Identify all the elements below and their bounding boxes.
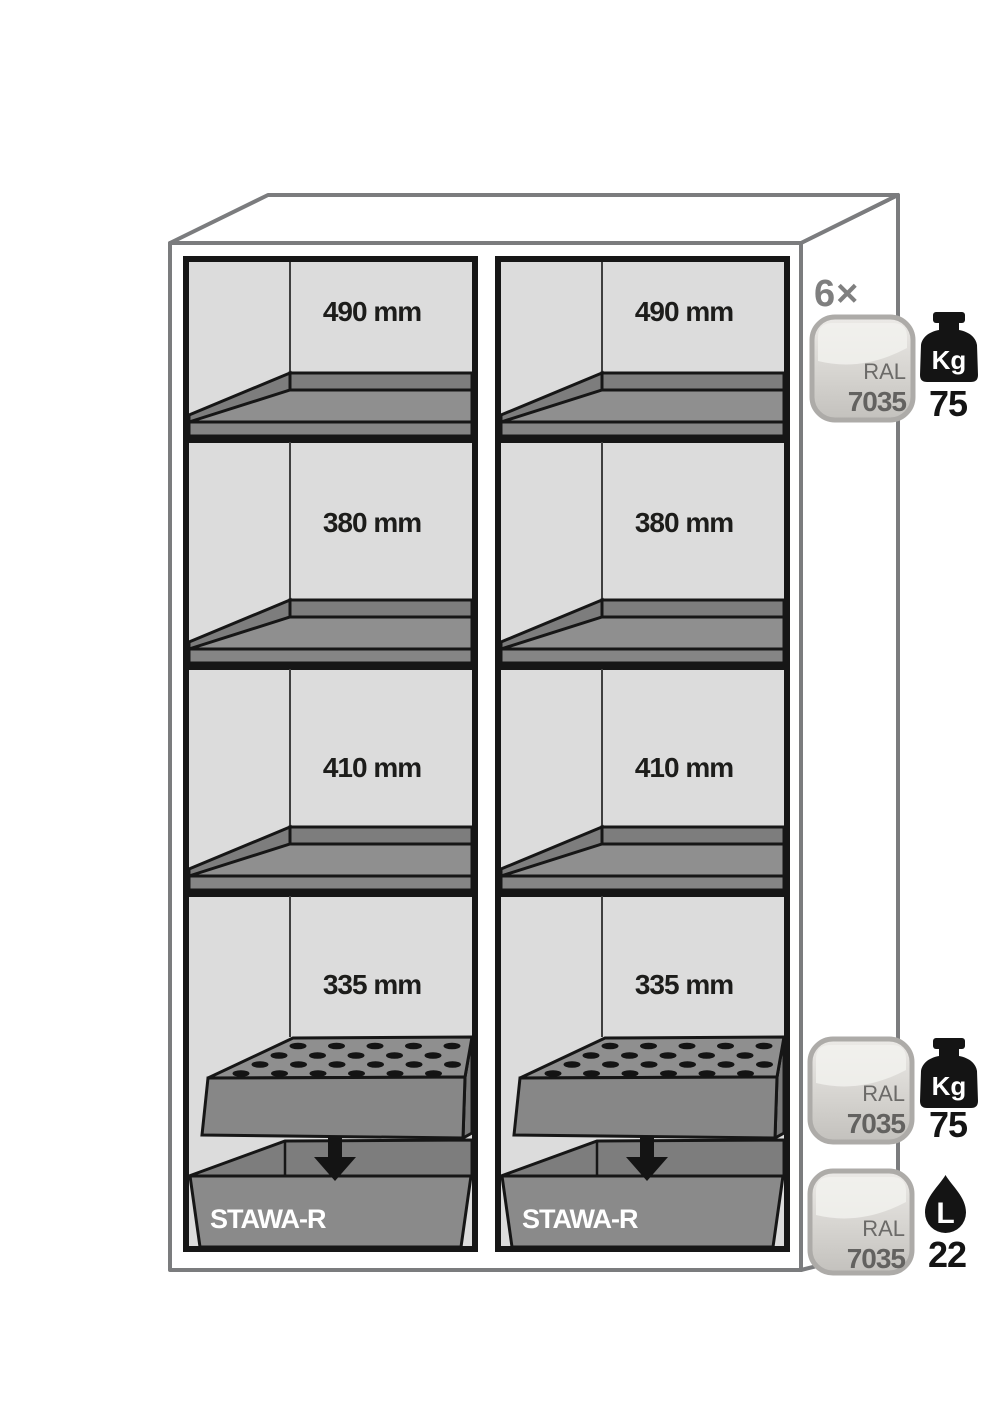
perforation-hole	[698, 1052, 715, 1059]
perforation-hole	[444, 1043, 461, 1050]
perforation-hole	[622, 1070, 639, 1077]
perforation-hole	[545, 1070, 562, 1077]
compartment-left: 490 mm 380 mm 410 mm 335 mm STAWA-R	[186, 259, 475, 1249]
perforation-hole	[290, 1043, 307, 1050]
shelf-front-edge	[189, 876, 472, 890]
perforation-hole	[737, 1052, 754, 1059]
perforation-hole	[679, 1061, 696, 1068]
insert-front-face	[514, 1077, 777, 1138]
perforation-hole	[328, 1043, 345, 1050]
perforation-hole	[406, 1061, 423, 1068]
perforation-hole	[271, 1052, 288, 1059]
perforation-hole	[367, 1043, 384, 1050]
perforation-hole	[233, 1070, 250, 1077]
perforation-hole	[425, 1070, 442, 1077]
perforation-hole	[660, 1052, 677, 1059]
kg-weight-icon: Kg	[920, 312, 978, 382]
perforation-hole	[699, 1070, 716, 1077]
badge-ral-code: 7035	[848, 386, 907, 417]
section-divider	[186, 436, 475, 443]
perforation-hole	[640, 1043, 657, 1050]
section-height-label: 380 mm	[635, 507, 733, 538]
shelf-back-lip	[290, 600, 472, 617]
badge-ral-text: RAL	[862, 1216, 905, 1241]
section-height-label: 380 mm	[323, 507, 421, 538]
perforation-hole	[309, 1052, 326, 1059]
cabinet-diagram-page: 490 mm 380 mm 410 mm 335 mm STAWA-R 490 …	[0, 0, 1003, 1418]
perforation-hole	[252, 1061, 269, 1068]
section-height-label: 335 mm	[635, 969, 733, 1000]
shelf-back-lip	[602, 373, 784, 390]
shelf-count-label: 6×	[814, 273, 859, 315]
section-divider	[186, 663, 475, 670]
perforation-hole	[386, 1052, 403, 1059]
shelf-back-lip	[602, 827, 784, 844]
volume-value: 22	[928, 1234, 966, 1275]
section-height-label: 410 mm	[323, 752, 421, 783]
section-height-label: 490 mm	[323, 296, 421, 327]
shelf-front-edge	[501, 876, 784, 890]
section-height-label: 410 mm	[635, 752, 733, 783]
perforation-hole	[756, 1043, 773, 1050]
perforation-hole	[756, 1061, 773, 1068]
perforation-hole	[717, 1043, 734, 1050]
shelf-front-edge	[189, 422, 472, 436]
perforation-hole	[737, 1070, 754, 1077]
capacity-value: 75	[929, 1104, 968, 1145]
section-height-label: 335 mm	[323, 969, 421, 1000]
shelf-front-edge	[189, 649, 472, 663]
section-divider	[186, 890, 475, 897]
shelf-front-edge	[501, 649, 784, 663]
perforation-hole	[425, 1052, 442, 1059]
capacity-value: 75	[929, 383, 968, 424]
section-height-label: 490 mm	[635, 296, 733, 327]
perforation-hole	[329, 1061, 346, 1068]
perforation-hole	[348, 1052, 365, 1059]
perforation-hole	[602, 1061, 619, 1068]
liter-unit-label: L	[936, 1197, 954, 1230]
perforation-hole	[718, 1061, 735, 1068]
sump-label: STAWA-R	[210, 1204, 326, 1234]
section-divider	[498, 663, 787, 670]
perforation-hole	[679, 1043, 696, 1050]
kg-unit-label: Kg	[932, 1071, 967, 1101]
section-divider	[498, 890, 787, 897]
perforation-hole	[660, 1070, 677, 1077]
shelf-back-lip	[602, 600, 784, 617]
badge-ral-code: 7035	[847, 1243, 906, 1274]
shelf-front-edge	[501, 422, 784, 436]
ral-7035-badge: RAL 7035	[810, 1171, 912, 1274]
perforation-hole	[583, 1070, 600, 1077]
perforation-hole	[290, 1061, 307, 1068]
ral-7035-badge: RAL 7035	[812, 317, 913, 420]
perforation-hole	[564, 1061, 581, 1068]
perforation-hole	[348, 1070, 365, 1077]
cabinet-diagram: 490 mm 380 mm 410 mm 335 mm STAWA-R 490 …	[0, 0, 1003, 1418]
kg-unit-label: Kg	[932, 345, 967, 375]
perforation-hole	[387, 1070, 404, 1077]
badge-ral-text: RAL	[863, 359, 906, 384]
perforation-hole	[641, 1061, 658, 1068]
liter-drop-icon: L	[925, 1175, 966, 1233]
cabinet-top-face	[170, 195, 898, 243]
kg-weight-icon: Kg	[920, 1038, 978, 1108]
section-divider	[498, 436, 787, 443]
shelf-back-lip	[290, 373, 472, 390]
perforation-hole	[405, 1043, 422, 1050]
badge-ral-code: 7035	[847, 1108, 906, 1139]
perforation-hole	[367, 1061, 384, 1068]
compartment-right: 490 mm 380 mm 410 mm 335 mm STAWA-R	[498, 259, 787, 1249]
perforation-hole	[271, 1070, 288, 1077]
insert-front-face	[202, 1077, 465, 1138]
ral-7035-badge: RAL 7035	[810, 1039, 912, 1142]
badge-ral-text: RAL	[862, 1081, 905, 1106]
sump-label: STAWA-R	[522, 1204, 638, 1234]
perforation-hole	[602, 1043, 619, 1050]
shelf-back-lip	[290, 827, 472, 844]
perforation-hole	[583, 1052, 600, 1059]
perforation-hole	[621, 1052, 638, 1059]
perforation-hole	[310, 1070, 327, 1077]
perforation-hole	[444, 1061, 461, 1068]
